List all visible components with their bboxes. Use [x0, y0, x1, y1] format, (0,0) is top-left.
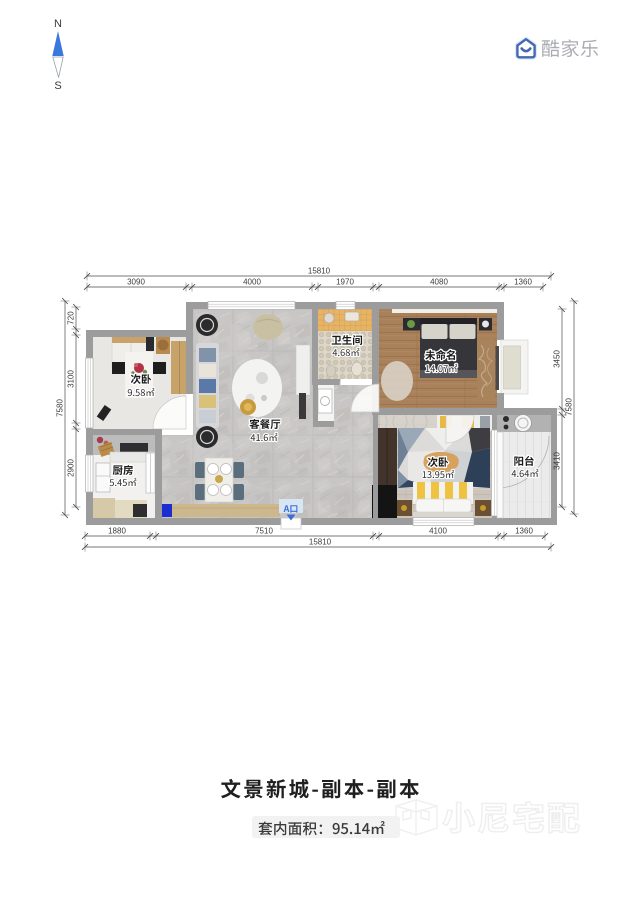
- svg-text:3100: 3100: [67, 370, 76, 388]
- svg-text:15810: 15810: [308, 267, 331, 276]
- svg-text:1880: 1880: [108, 527, 126, 536]
- svg-text:3450: 3450: [553, 350, 562, 368]
- svg-text:15810: 15810: [309, 538, 332, 547]
- svg-text:7580: 7580: [56, 399, 65, 417]
- svg-text:1360: 1360: [514, 278, 532, 287]
- svg-text:3090: 3090: [127, 278, 145, 287]
- svg-text:4100: 4100: [429, 527, 447, 536]
- svg-text:4000: 4000: [243, 278, 261, 287]
- svg-text:7580: 7580: [565, 398, 574, 416]
- svg-text:S: S: [54, 80, 61, 92]
- svg-text:720: 720: [67, 311, 76, 325]
- svg-text:N: N: [54, 18, 62, 30]
- svg-text:4080: 4080: [430, 278, 448, 287]
- svg-text:1970: 1970: [336, 278, 354, 287]
- svg-text:1360: 1360: [515, 527, 533, 536]
- svg-text:7510: 7510: [255, 527, 273, 536]
- svg-text:3410: 3410: [553, 452, 562, 470]
- svg-text:2900: 2900: [67, 459, 76, 477]
